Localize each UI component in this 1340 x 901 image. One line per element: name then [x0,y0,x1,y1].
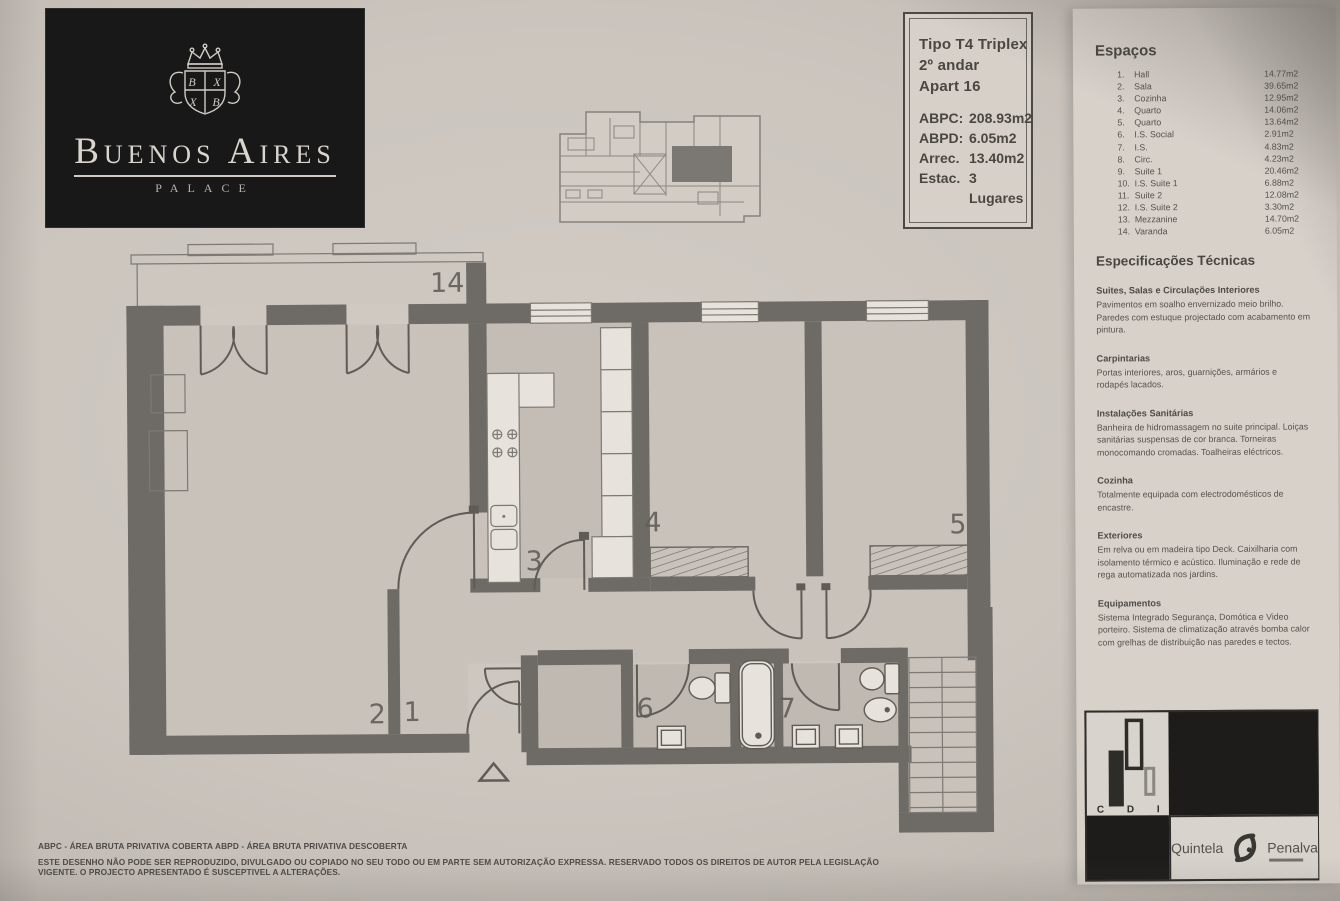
space-item: 7.I.S.4.83m2 [1117,140,1320,153]
label-is: 7 [778,693,795,724]
space-item: 12.I.S. Suite 23.30m2 [1118,200,1321,213]
space-item: 13.Mezzanine14.70m2 [1118,213,1321,226]
vestibule-door [485,668,521,704]
brand-subtitle: PALACE [155,181,255,196]
highlighted-unit [672,146,732,182]
svg-text:B: B [212,95,220,109]
tech-spec-section: Instalações SanitáriasBanheira de hidrom… [1097,407,1311,459]
unit-areas: ABPC:208.93m2 ABPD:6.05m2 Arrec.13.40m2 … [919,108,1031,208]
windows [530,300,928,323]
area-row: ABPD:6.05m2 [919,128,1031,148]
brand-block-dark-cell [1168,711,1317,815]
spec-panel: Espaços 1.Hall14.77m2 2.Sala39.65m2 3.Co… [1073,7,1340,884]
footer-abbr-abpd: ABPD - ÁREA BRUTA PRIVATIVA DESCOBERTA [215,841,407,851]
area-row: Estac.3 Lugares [919,168,1031,208]
washbasin [792,725,819,748]
bathtub [739,661,775,749]
entry-door [467,681,519,733]
svg-text:X: X [188,95,197,109]
agency-logo: Quintela Penalva [1169,814,1318,879]
space-item: 4.Quarto14.06m2 [1117,104,1320,117]
space-item: 8.Circ.4.23m2 [1117,152,1320,165]
area-row: Arrec.13.40m2 [919,148,1031,168]
label-quarto4: 4 [644,507,661,538]
unit-floor: 2º andar [919,55,1031,76]
scanned-floorplan-page: BX XB Buenos Aires PALACE Tipo T4 Triple… [0,0,1340,901]
spaces-title: Espaços [1095,41,1320,59]
key-plan [548,98,770,230]
agency-name-right: Penalva [1267,839,1318,855]
space-item: 11.Suite 212.08m2 [1118,188,1321,201]
brand-logo-box: BX XB Buenos Aires PALACE [45,8,365,228]
brand-block: C D I Quintela Penalva [1084,709,1319,881]
space-item: 2.Sala39.65m2 [1117,79,1320,92]
label-is-social: 6 [636,693,653,724]
space-item: 9.Suite 120.46m2 [1118,164,1321,177]
area-row: ABPC:208.93m2 [919,108,1031,128]
label-cozinha: 3 [525,546,542,577]
tech-spec-section: Suites, Salas e Circulações InterioresPa… [1096,285,1310,337]
logo-rule [74,175,336,177]
svg-text:B: B [188,75,196,89]
tech-spec-section: CozinhaTotalmente equipada com electrodo… [1097,475,1311,514]
label-hall: 1 [404,697,421,728]
agency-swirl-icon [1229,831,1261,865]
space-item: 1.Hall14.77m2 [1117,67,1320,80]
crest-icon: BX XB [157,40,253,126]
space-item: 3.Cozinha12.95m2 [1117,92,1320,105]
svg-text:I: I [1157,804,1160,815]
label-sala: 2 [369,699,386,730]
tech-spec-section: CarpintariasPortas interiores, aros, gua… [1097,352,1311,391]
tech-spec-section: ExterioresEm relva ou em madeira tipo De… [1097,530,1311,582]
spaces-list: 1.Hall14.77m2 2.Sala39.65m2 3.Cozinha12.… [1095,67,1321,237]
bidet [864,698,896,722]
label-varanda: 14 [430,268,465,299]
tech-specs-title: Especificações Técnicas [1096,253,1321,269]
footer-abbr-abpc: ABPC - ÁREA BRUTA PRIVATIVA COBERTA [38,841,213,851]
washbasin [835,725,862,748]
cdi-logo: C D I [1086,712,1169,815]
svg-text:X: X [212,75,221,89]
svg-text:C: C [1097,805,1104,816]
washbasin [657,726,685,749]
label-quarto5: 5 [949,509,966,540]
space-item: 14.Varanda6.05m2 [1118,225,1321,238]
footer-disclaimer: ESTE DESENHO NÃO PODE SER REPRODUZIDO, D… [38,857,918,877]
space-item: 6.I.S. Social2.91m2 [1117,128,1320,141]
agency-name-left: Quintela [1171,840,1223,856]
floor-plan: 14 2 1 3 4 5 6 7 [111,225,1020,851]
svg-text:D: D [1127,804,1134,815]
tech-spec-section: EquipamentosSistema Integrado Segurança,… [1098,597,1312,649]
brand-block-dark-cell [1087,815,1169,879]
unit-type: Tipo T4 Triplex [919,34,1031,55]
unit-info-box: Tipo T4 Triplex 2º andar Apart 16 ABPC:2… [903,12,1033,229]
entry-arrow [480,763,508,780]
space-item: 5.Quarto13.64m2 [1117,116,1320,129]
space-item: 10.I.S. Suite 16.88m2 [1118,176,1321,189]
unit-number: Apart 16 [919,76,1031,97]
brand-name: Buenos Aires [74,130,336,173]
